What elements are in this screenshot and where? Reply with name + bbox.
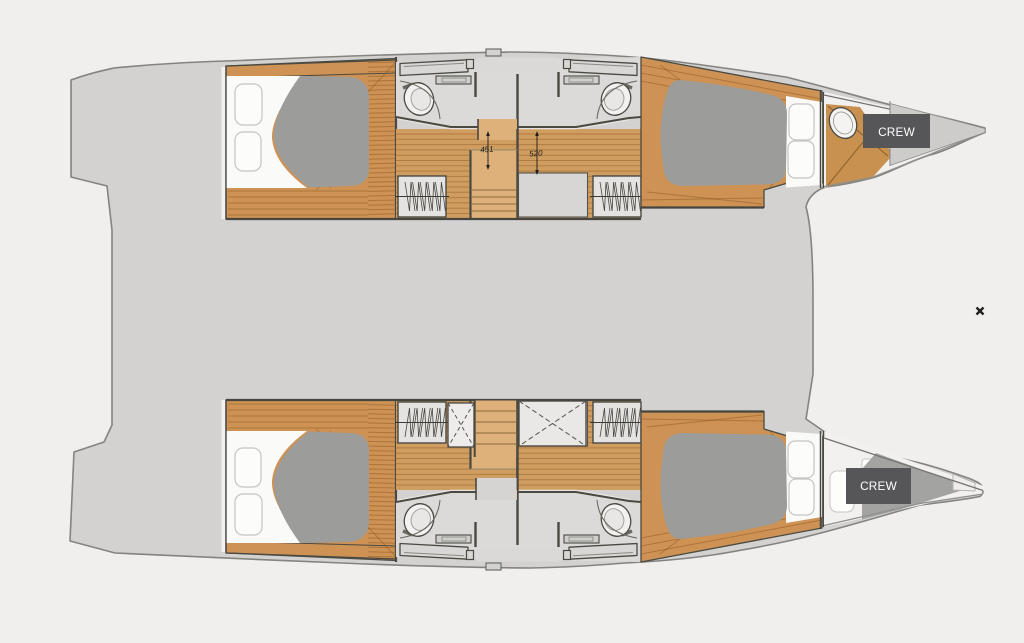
svg-text:CREW: CREW bbox=[860, 479, 898, 493]
svg-text:520: 520 bbox=[529, 149, 543, 159]
svg-text:CREW: CREW bbox=[878, 125, 916, 139]
svg-text:451: 451 bbox=[480, 145, 494, 155]
